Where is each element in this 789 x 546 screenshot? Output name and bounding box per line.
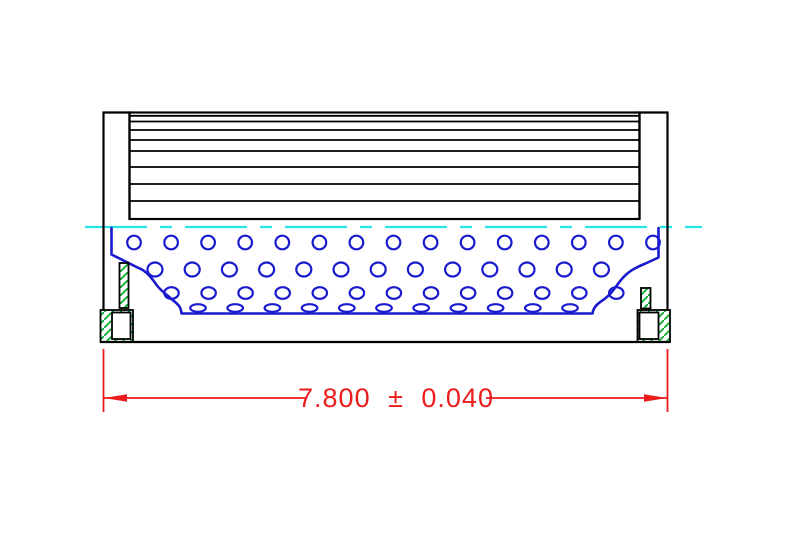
core-hole [371,263,386,277]
core-hole [488,304,504,312]
end-cap-right-wall [640,113,668,311]
core-hole [350,236,364,250]
core-hole [201,287,215,299]
core-hole [313,287,327,299]
core-hole [498,287,512,299]
core-hole [376,304,392,312]
core-hole [276,287,290,299]
foot-left-channel [112,313,131,340]
core-hole [259,263,274,277]
core-hole [339,304,355,312]
core-hole [265,304,281,312]
core-hole [461,236,475,250]
core-hole [572,236,586,250]
dimension: 7.800 ± 0.040 [104,349,668,413]
core-hole [424,287,438,299]
core-hole [520,263,535,277]
core-hole [190,304,206,312]
core-hole [562,304,578,312]
dimension-text: 7.800 ± 0.040 [298,383,494,413]
core-hole [424,236,438,250]
core-hole [127,236,141,250]
core-hole [276,236,290,250]
foot-right-channel [640,313,659,340]
media-outline [130,113,640,220]
gasket-hatch-left [120,263,129,308]
core-hole [227,304,243,312]
filter-element-drawing: 7.800 ± 0.040 [0,0,789,546]
core-hole [302,304,318,312]
core-hole [535,236,549,250]
core-holes [127,236,660,312]
core-hole [387,287,401,299]
core-hole [148,263,163,277]
pleated-media [130,113,640,220]
core-hole [451,304,467,312]
core-hole [408,263,423,277]
core-hole [238,287,252,299]
core-hole [350,287,364,299]
core-hole [164,236,178,250]
core-hole [201,236,215,250]
arrow-left [104,394,127,402]
drawing-canvas: 7.800 ± 0.040 [0,0,789,546]
core-hole [535,287,549,299]
core-hole [482,263,497,277]
core-hole [296,263,311,277]
gasket-hatch-right [641,288,651,309]
core-hole [572,287,586,299]
core-hole [222,263,237,277]
core-hole [594,263,609,277]
core-hole [557,263,572,277]
core-hole [498,236,512,250]
perforated-core [112,228,660,314]
core-hole [445,263,460,277]
core-hole [461,287,475,299]
core-hole [238,236,252,250]
core-hole [313,236,327,250]
arrow-right [644,394,667,402]
core-hole [413,304,429,312]
pleat-lines [130,116,639,201]
core-hole [185,263,200,277]
core-hole [387,236,401,250]
core-hole [609,236,623,250]
core-hole [334,263,349,277]
core-hole [525,304,541,312]
